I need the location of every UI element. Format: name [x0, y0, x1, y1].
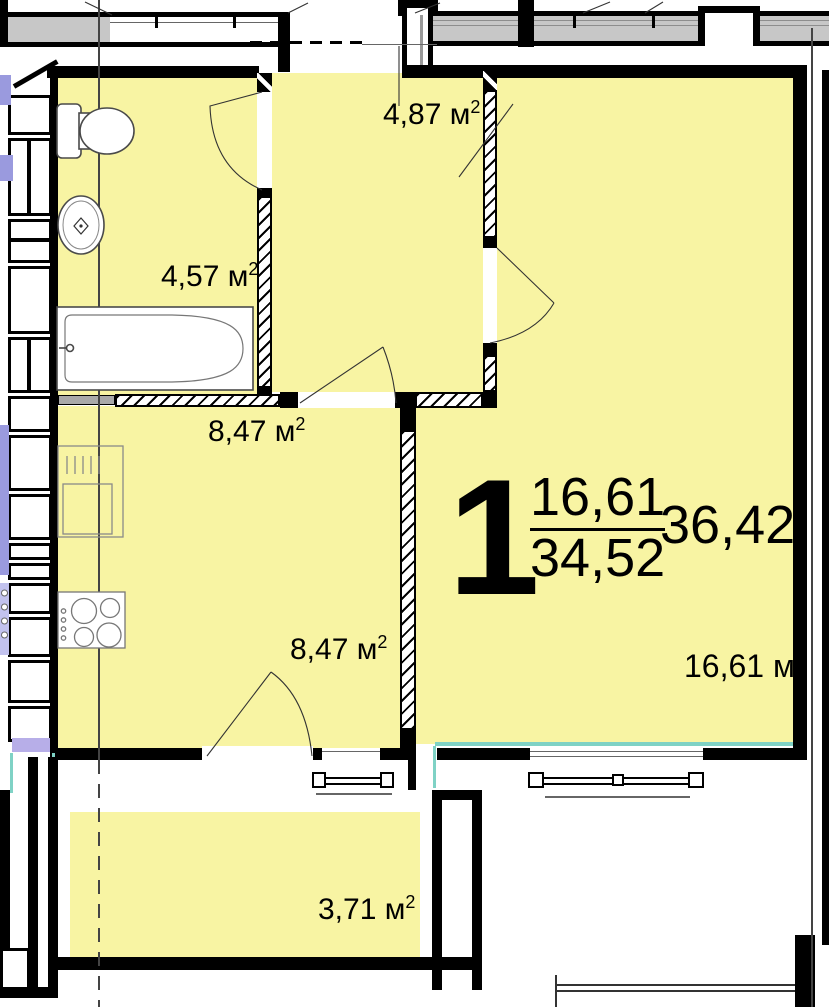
wall-hatched [115, 394, 280, 407]
wall-hatched [483, 355, 497, 392]
wall-segment [432, 795, 442, 990]
window-frame [316, 777, 390, 779]
corridor-line [760, 25, 829, 26]
stamp-room-count: 1 [448, 455, 540, 620]
door-hinge-block [483, 71, 497, 90]
shaft-box [8, 95, 52, 135]
door-jamb [483, 343, 497, 355]
axis-line [98, 0, 100, 760]
window-line [322, 751, 380, 752]
wall-segment [408, 760, 416, 790]
wall-hatched [415, 392, 483, 408]
axis-line [811, 28, 813, 1007]
window-jamb [380, 772, 394, 788]
neighbor-rail [555, 975, 557, 1007]
shaft-box [0, 948, 30, 990]
window-sill [316, 793, 392, 795]
wall-neighbor-right [822, 70, 829, 945]
stamp-area-fraction: 16,61 34,52 [530, 470, 665, 586]
wall-hatched [483, 90, 497, 238]
window-tick [652, 15, 655, 28]
shaft-divider [27, 340, 31, 390]
corridor-band [0, 17, 110, 42]
neighbor-rail [555, 990, 795, 992]
wall-segment [757, 41, 829, 46]
neighbor-block [0, 583, 9, 655]
room-living [497, 78, 793, 744]
accent-line [10, 753, 13, 793]
wall-gray-block [58, 395, 115, 405]
corridor-line [110, 22, 278, 23]
neighbor-block [0, 75, 11, 105]
room-bathroom [58, 73, 258, 395]
wall-living-top [402, 65, 797, 78]
door-opening-kitchen [298, 392, 395, 408]
window-jamb [312, 772, 326, 788]
shaft-box [8, 583, 52, 614]
shaft-box [8, 706, 52, 742]
wall-hatched [400, 430, 416, 730]
neighbor-rail [555, 984, 795, 986]
wall-balcony-bottom [55, 957, 482, 970]
shaft-box [8, 543, 52, 560]
entrance-door-dashed [250, 41, 362, 44]
door-jamb [280, 392, 298, 408]
wall-segment [0, 790, 10, 948]
window-line [530, 756, 703, 757]
shaft-box [8, 396, 52, 432]
shaft-divider [10, 238, 50, 242]
wall-hatched [257, 196, 272, 388]
window-tick [233, 15, 236, 28]
window-opening-living [530, 748, 703, 760]
shaft-box [8, 660, 52, 703]
room-balcony [70, 812, 420, 957]
wall-segment [48, 757, 58, 989]
wall-segment [400, 730, 416, 760]
door-jamb [698, 8, 705, 46]
shaft-box [8, 617, 52, 657]
shaft-box [8, 494, 52, 540]
pillar [402, 8, 433, 72]
window-line [530, 751, 703, 752]
shaft-divider [27, 141, 31, 213]
wall-segment [433, 41, 700, 46]
wall-segment [755, 11, 829, 16]
corridor-line [362, 44, 437, 45]
kitchen-area-label: 8,47 м2 [208, 414, 305, 449]
floor-plan: 4,87 м2 4,57 м2 8,47 м2 8,47 м2 16,61 м2… [0, 0, 829, 1007]
wall-segment [398, 0, 438, 8]
stamp-living-area: 16,61 [530, 470, 665, 531]
pillar-line [420, 15, 423, 65]
door-opening-balcony [202, 746, 313, 762]
kitchen-area-label-2: 8,47 м2 [290, 632, 387, 667]
leader-line [288, 3, 308, 13]
door-opening-bathroom [257, 92, 272, 188]
hallway-area-label: 4,87 м2 [383, 97, 480, 132]
corridor-niche [110, 17, 278, 42]
wall-segment [0, 987, 58, 998]
door-hinge-block [257, 73, 272, 92]
shaft-box [8, 266, 52, 334]
wall-bathroom-top [47, 66, 259, 78]
shaft-box [8, 435, 52, 491]
wall-segment [0, 42, 290, 47]
door-opening-living [483, 248, 497, 343]
corridor-line [433, 25, 698, 26]
neighbor-door-opening [703, 13, 755, 46]
window-sill [545, 796, 690, 798]
wall-segment [400, 392, 416, 430]
door-jamb [753, 8, 760, 46]
shaft-box [8, 563, 52, 580]
window-tick [155, 15, 158, 28]
accent-line [435, 742, 793, 746]
living-area-label: 16,61 м2 [684, 648, 806, 685]
wall-segment [518, 0, 534, 47]
window-mullion [612, 774, 624, 786]
stamp-total-area: 34,52 [530, 531, 665, 586]
corridor-line [760, 20, 829, 21]
wall-segment [0, 0, 8, 46]
neighbor-block [12, 738, 50, 752]
neighbor-block [0, 155, 13, 181]
window-jamb [528, 772, 544, 788]
window-frame [316, 783, 390, 785]
wall-segment [398, 11, 703, 16]
window-jamb [688, 772, 704, 788]
door-jamb [698, 6, 760, 13]
corridor-line [433, 20, 698, 21]
window-opening-kitchen [322, 748, 380, 760]
wall-segment [483, 392, 497, 408]
balcony-area-label: 3,71 м2 [318, 892, 415, 927]
wall-segment [472, 795, 482, 990]
accent-line [433, 746, 436, 788]
neighbor-block [0, 425, 9, 575]
axis-line-dashed [98, 760, 100, 1007]
window-tick [573, 15, 576, 28]
stamp-total-with-balcony: 36,42 [660, 498, 795, 552]
room-kitchen [58, 406, 400, 748]
door-jamb [483, 238, 497, 248]
bathroom-area-label: 4,57 м2 [161, 259, 258, 294]
